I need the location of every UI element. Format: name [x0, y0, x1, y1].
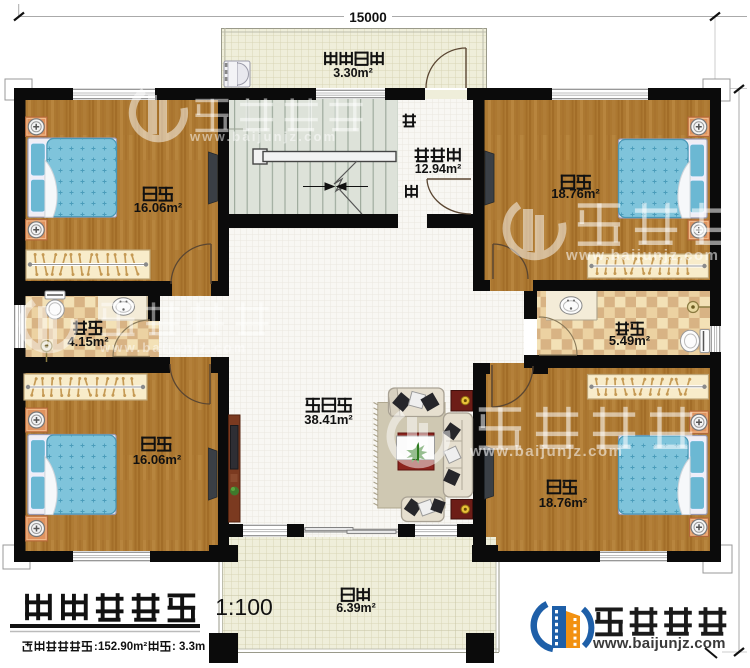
svg-text:: 3.3m: : 3.3m: [172, 641, 205, 653]
svg-text:3.30m²: 3.30m²: [333, 66, 373, 80]
svg-text:www.baijunjz.com: www.baijunjz.com: [565, 247, 719, 264]
svg-text:38.41m²: 38.41m²: [304, 412, 353, 427]
svg-text:16.06m²: 16.06m²: [134, 200, 183, 215]
svg-text:15000: 15000: [349, 10, 387, 25]
svg-text:www.baijunjz.com: www.baijunjz.com: [99, 340, 247, 355]
svg-text:152.90m²: 152.90m²: [98, 641, 147, 653]
svg-text:18.76m²: 18.76m²: [539, 495, 588, 510]
svg-text:12.94m²: 12.94m²: [415, 162, 462, 176]
svg-text:1:100: 1:100: [215, 594, 273, 620]
svg-text:www.baijunjz.com: www.baijunjz.com: [189, 129, 337, 144]
svg-text:www.baijunjz.com: www.baijunjz.com: [469, 443, 623, 460]
svg-text:6.39m²: 6.39m²: [336, 601, 376, 615]
svg-text:16.06m²: 16.06m²: [133, 452, 182, 467]
svg-text:5.49m²: 5.49m²: [609, 333, 651, 348]
svg-text:18.76m²: 18.76m²: [551, 186, 600, 201]
